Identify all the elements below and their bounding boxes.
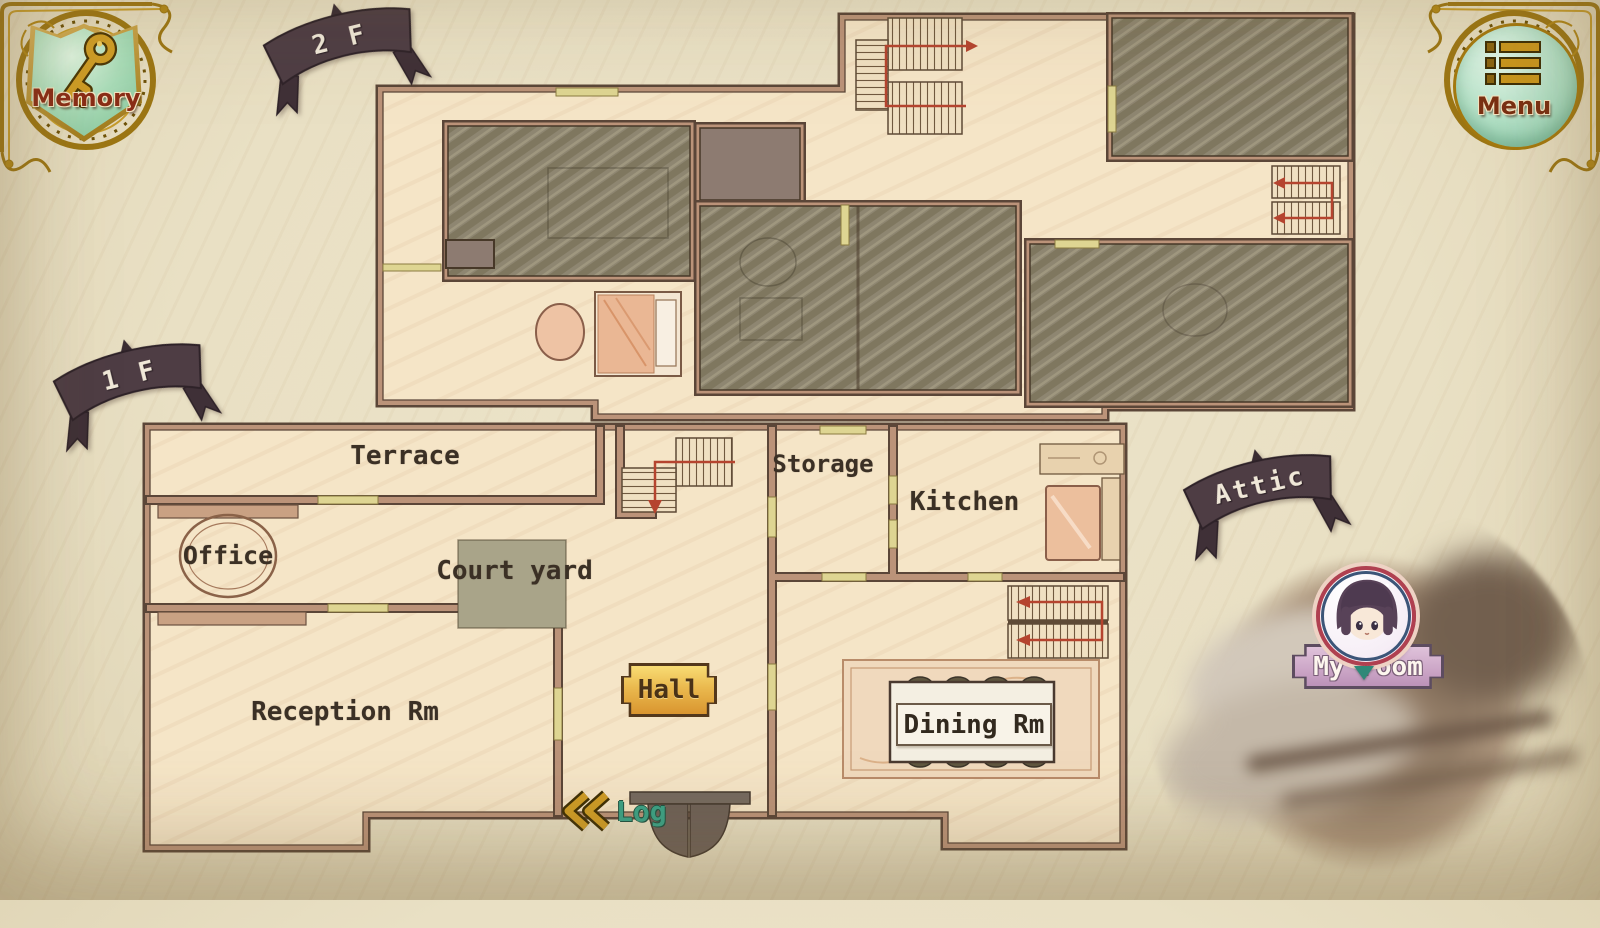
hall-plaque[interactable]: Hall <box>621 663 717 717</box>
room-label-office[interactable]: Office <box>178 541 278 570</box>
room-label-dining: Dining Rm <box>904 710 1045 740</box>
room-label-terrace[interactable]: Terrace <box>335 441 475 471</box>
menu-button[interactable]: Menu <box>1422 0 1600 175</box>
pin-pointer-icon <box>1354 666 1374 680</box>
character-avatar <box>1316 566 1416 666</box>
floorplan-2f <box>383 18 1348 414</box>
double-chevron-left-icon <box>556 788 612 834</box>
room-label-storage[interactable]: Storage <box>768 450 878 478</box>
memory-button-label: Memory <box>10 84 162 112</box>
log-button-label: Log <box>616 795 667 828</box>
menu-list-icon <box>1485 40 1543 88</box>
chibi-face-icon <box>1324 574 1410 660</box>
memory-button[interactable]: Memory <box>0 0 178 175</box>
bed <box>595 292 681 376</box>
kitchen-furniture <box>1040 444 1124 560</box>
log-button[interactable]: Log <box>556 788 667 834</box>
room-label-kitchen[interactable]: Kitchen <box>902 487 1027 517</box>
dining-room-plaque[interactable]: Dining Rm <box>896 703 1052 746</box>
private-room-hatched-b <box>700 206 1016 390</box>
private-room-brown <box>700 128 800 200</box>
round-table <box>536 304 584 360</box>
private-room-hatched-bottomright <box>1030 244 1348 402</box>
avatar-ring <box>1321 571 1411 661</box>
private-room-small-brown <box>446 240 494 268</box>
menu-button-label: Menu <box>1454 92 1574 120</box>
my-room-pin[interactable] <box>1316 566 1416 684</box>
stairs-1f-right <box>1008 586 1108 658</box>
room-label-hall: Hall <box>624 666 714 714</box>
room-label-reception[interactable]: Reception Rm <box>250 697 440 727</box>
private-room-hatched-topright <box>1112 18 1348 156</box>
room-label-courtyard[interactable]: Court yard <box>432 556 597 586</box>
